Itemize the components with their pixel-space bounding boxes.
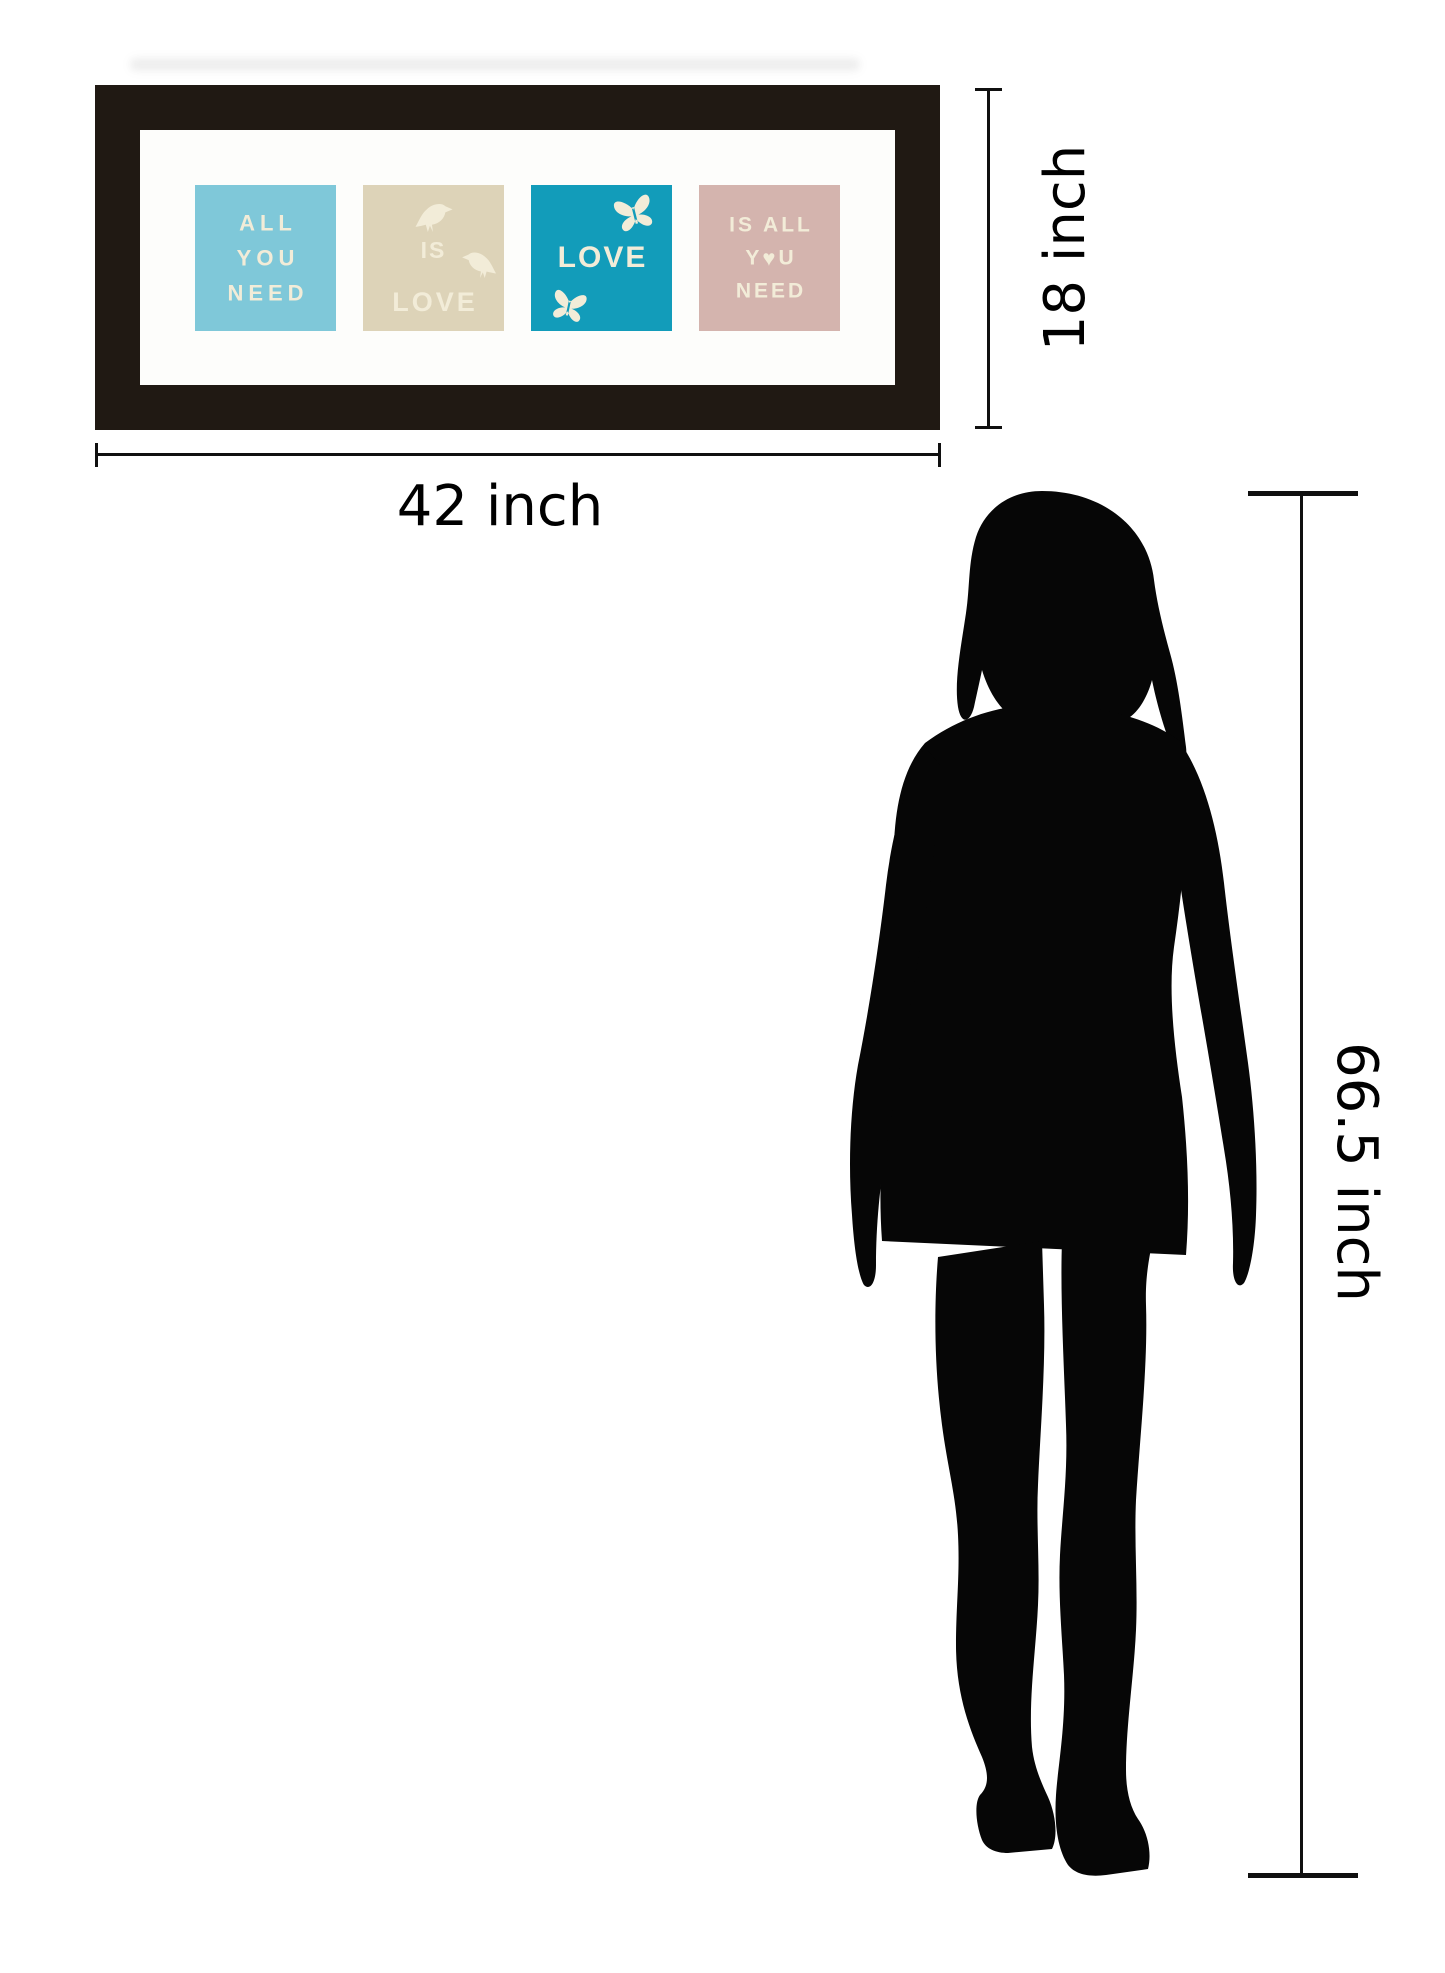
bird-icon: [461, 247, 499, 279]
width-dimension-line: [97, 453, 941, 456]
height-dimension-end-tick: [975, 88, 1002, 91]
tile-word-love: LOVE: [363, 287, 504, 318]
art-mat: ALL YOU NEED IS LOVE: [140, 130, 895, 385]
frame-top-shadow: [130, 58, 860, 71]
height-dimension-label: 18 inch: [1036, 118, 1096, 378]
person-height-label: 66.5 inch: [1326, 1022, 1386, 1322]
art-tile-is-love: IS LOVE: [363, 185, 504, 331]
tile-text: ALL YOU NEED: [195, 205, 336, 310]
width-dimension-end-tick: [938, 443, 941, 467]
tile-text-part: U: [778, 246, 796, 269]
art-tile-love: LOVE: [531, 185, 672, 331]
butterfly-icon: [610, 189, 658, 234]
butterfly-icon: [548, 285, 590, 324]
tile-text-line: ALL: [195, 205, 336, 240]
woman-silhouette: [830, 485, 1280, 1885]
tile-text-line: NEED: [195, 275, 336, 310]
framed-artwork: ALL YOU NEED IS LOVE: [95, 85, 940, 430]
size-comparison-canvas: ALL YOU NEED IS LOVE: [0, 0, 1445, 1973]
tile-text-line: IS ALL: [699, 208, 840, 241]
tile-text-line: Y♥U: [699, 241, 840, 274]
tile-text: IS ALL Y♥U NEED: [699, 208, 840, 307]
tile-word-love: LOVE: [531, 241, 672, 275]
height-dimension-end-tick: [975, 426, 1002, 429]
height-dimension-line: [987, 89, 990, 429]
heart-icon: ♥: [762, 245, 778, 270]
art-tile-is-all-you-need: IS ALL Y♥U NEED: [699, 185, 840, 331]
width-dimension-label: 42 inch: [330, 477, 670, 537]
width-dimension-end-tick: [95, 443, 98, 467]
bird-icon: [412, 198, 454, 233]
tile-text-line: YOU: [195, 240, 336, 275]
art-tile-all-you-need: ALL YOU NEED: [195, 185, 336, 331]
tile-text-line: NEED: [699, 274, 840, 307]
person-height-line: [1300, 493, 1303, 1878]
tile-text-part: Y: [745, 246, 762, 269]
